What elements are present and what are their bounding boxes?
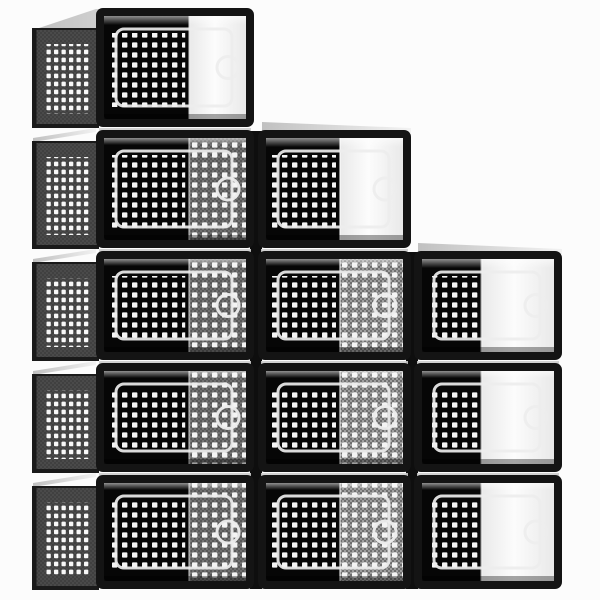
side-panel-bottom-edge [33,357,98,360]
lid-reflection [422,483,554,490]
side-panel-perforation [44,502,90,576]
open-door-panel [481,483,554,581]
interior-floor-shadow [422,347,554,352]
shoe-box-right-row3 [414,243,562,360]
shoe-box-right-row5 [414,473,562,589]
lid-reflection [104,259,246,266]
side-panel-bottom-edge [33,586,98,589]
back-wall-perforation [110,276,185,340]
lid-reflection [104,138,246,145]
door-edge-highlight [188,138,190,240]
lid-reflection [422,259,554,268]
back-wall-perforation [272,276,336,340]
door-edge-highlight [188,483,190,581]
shoe-box-left-row4 [33,361,254,472]
back-wall-perforation [110,33,185,107]
back-wall-perforation [110,500,185,569]
interior-floor-shadow [422,459,554,464]
interior-floor-shadow [422,576,554,581]
side-panel-perforation [44,157,90,235]
open-door-panel [340,138,403,240]
side-panel-edge [33,263,37,360]
lid-reflection [266,138,403,147]
shoe-box-left-row5 [33,473,254,589]
lid-reflection [104,483,246,490]
interior-floor-shadow [104,459,246,464]
lid-reflection [266,371,403,378]
shoe-box-middle-row5 [258,473,411,589]
side-panel-bottom-edge [33,124,98,127]
door-edge-highlight [339,483,341,581]
shoe-box-middle-row4 [258,361,411,472]
back-wall-perforation [110,388,185,452]
side-panel-perforation [44,278,90,347]
door-edge-highlight [188,16,190,119]
back-wall-perforation [110,155,185,228]
shoe-box-left-row3 [33,249,254,360]
shoe-box-scene [0,0,600,600]
lid-reflection [422,371,554,378]
lid-reflection [266,483,403,490]
interior-floor-shadow [104,235,246,240]
side-panel-bottom-edge [33,245,98,248]
shoe-box-middle-row2 [258,122,411,248]
side-panel-bottom-edge [33,469,98,472]
interior-floor-shadow [266,459,403,464]
back-wall-perforation [272,155,336,228]
mesh-side-wall-perforation [340,483,403,581]
side-panel-edge [33,375,37,472]
lid-reflection [266,259,403,266]
interior-floor-shadow [266,235,403,240]
shoe-box-middle-row3 [258,249,411,360]
back-wall-perforation [272,500,336,569]
side-panel-edge [33,487,37,589]
shoe-box-left-row2 [33,128,254,248]
side-panel-perforation [44,44,90,114]
interior-floor-shadow [104,576,246,581]
lid-reflection [104,371,246,378]
back-wall-perforation [272,388,336,452]
side-panel-edge [33,142,37,248]
shoe-box-left-row1 [33,8,254,127]
side-panel-perforation [44,390,90,459]
interior-floor-shadow [266,347,403,352]
product-photo-shoe-storage-boxes [0,0,600,600]
interior-floor-shadow [266,576,403,581]
interior-floor-shadow [104,114,246,119]
lid-reflection [104,16,246,25]
door-edge-highlight [339,138,341,240]
shoe-box-right-row4 [414,361,562,472]
side-panel-edge [33,29,37,127]
door-edge-highlight [480,483,482,581]
interior-floor-shadow [104,347,246,352]
